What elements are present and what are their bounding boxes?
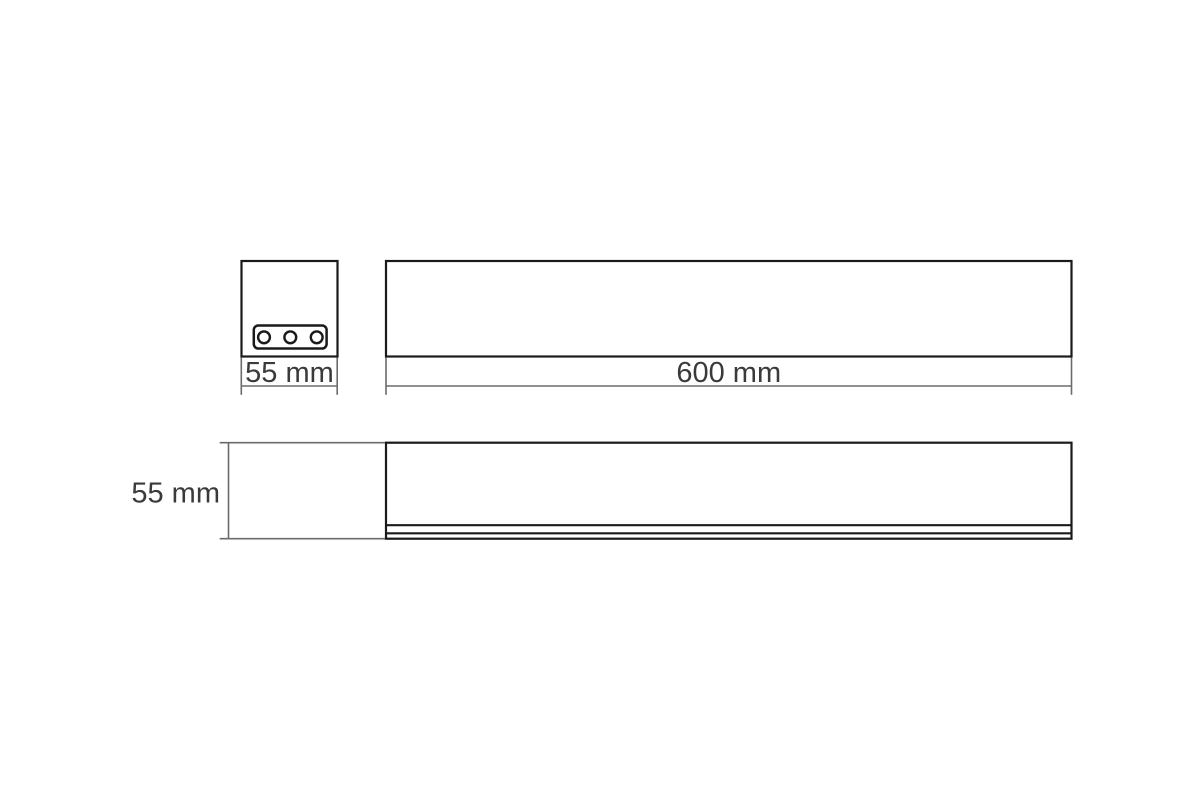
svg-text:55 mm: 55 mm [131, 478, 220, 510]
svg-text:55 mm: 55 mm [245, 357, 334, 389]
svg-text:600 mm: 600 mm [676, 357, 781, 389]
